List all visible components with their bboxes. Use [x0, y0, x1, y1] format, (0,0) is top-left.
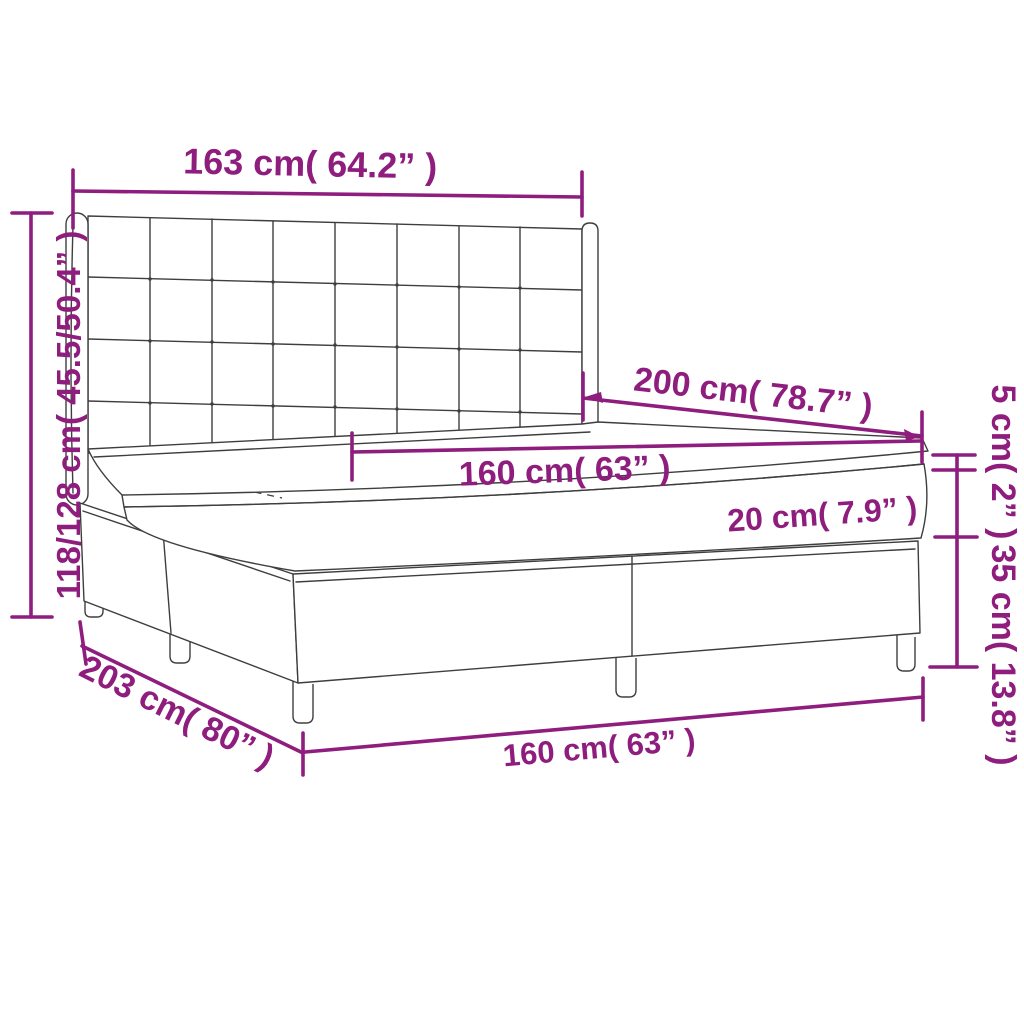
bed-dimension-diagram: 163 cm( 64.2” ) 118/128 cm( 45.5/50.4” )… — [0, 0, 1024, 1024]
width-bottom-label: 160 cm( 63” ) — [501, 722, 696, 774]
dimension-overall-height: 118/128 cm( 45.5/50.4” ) — [12, 213, 87, 617]
dimension-headboard-width: 163 cm( 64.2” ) — [73, 140, 582, 228]
bed-leg — [293, 681, 313, 723]
topper-height-label: 5 cm( 2” ) — [984, 385, 1022, 540]
mattress-width-label: 160 cm( 63” ) — [458, 448, 671, 493]
bed-leg — [616, 655, 636, 697]
overall-height-label: 118/128 cm( 45.5/50.4” ) — [50, 231, 87, 600]
dimension-width-bottom: 160 cm( 63” ) — [305, 678, 923, 773]
overall-length-label: 203 cm( 80” ) — [74, 648, 280, 776]
base-height-label: 35 cm( 13.8” ) — [984, 544, 1022, 765]
dimension-right-stack: 5 cm( 2” ) 35 cm( 13.8” ) — [930, 385, 1022, 766]
headboard-width-label: 163 cm( 64.2” ) — [183, 140, 438, 186]
bed-leg — [897, 634, 915, 671]
diagram-canvas: 163 cm( 64.2” ) 118/128 cm( 45.5/50.4” )… — [0, 0, 1024, 1024]
